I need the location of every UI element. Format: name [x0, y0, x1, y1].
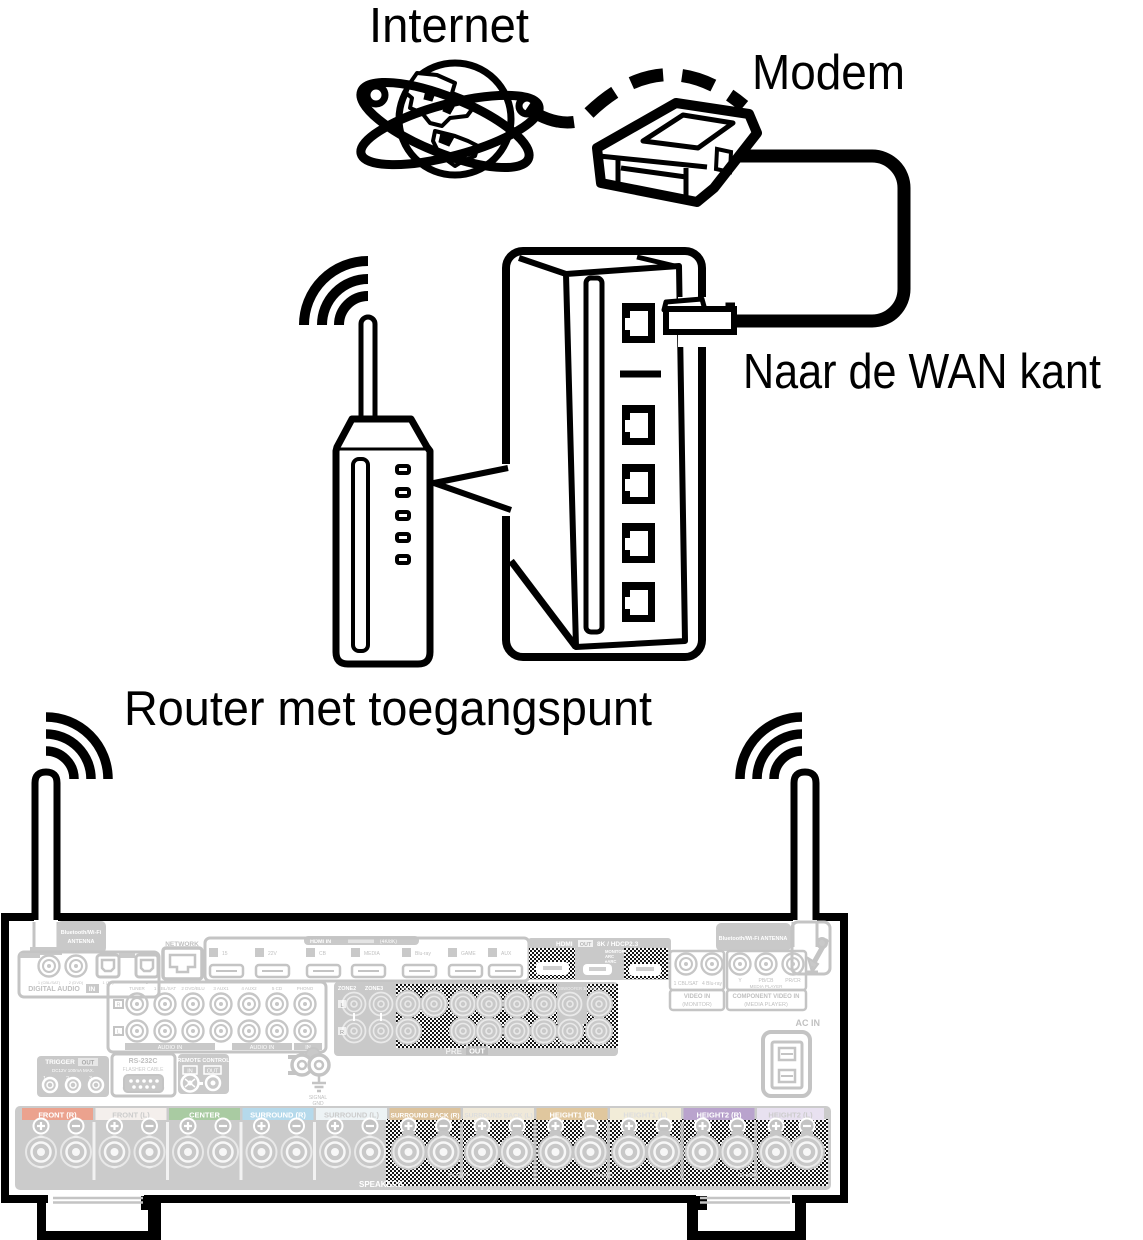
svg-text:L: L [117, 1030, 120, 1036]
svg-text:PRE: PRE [446, 1047, 463, 1056]
svg-text:22V: 22V [268, 951, 278, 957]
svg-text:AUDIO IN: AUDIO IN [250, 1045, 274, 1051]
svg-text:3 AUX1: 3 AUX1 [213, 986, 229, 991]
svg-text:FLASHER CABLE: FLASHER CABLE [123, 1067, 165, 1073]
svg-text:SPEAKERS: SPEAKERS [359, 1180, 404, 1189]
svg-text:4 AUX2: 4 AUX2 [241, 986, 257, 991]
svg-text:4 Blu-ray: 4 Blu-ray [702, 981, 723, 987]
svg-text:ANTENNA: ANTENNA [68, 939, 95, 945]
svg-text:REMOTE CONTROL: REMOTE CONTROL [177, 1058, 230, 1064]
svg-text:Bluetooth/Wi-Fi ANTENNA: Bluetooth/Wi-Fi ANTENNA [719, 936, 788, 942]
svg-text:Bluetooth/Wi-Fi: Bluetooth/Wi-Fi [61, 930, 102, 936]
svg-text:IN: IN [89, 986, 96, 993]
svg-text:(MEDIA PLAYER): (MEDIA PLAYER) [744, 1002, 788, 1008]
svg-text:OUT: OUT [207, 1069, 219, 1075]
svg-text:VIDEO IN: VIDEO IN [684, 994, 710, 1000]
svg-text:OUT: OUT [580, 942, 592, 948]
svg-text:TUNER: TUNER [129, 986, 145, 991]
svg-text:Modem: Modem [752, 46, 905, 100]
svg-text:GAME: GAME [461, 951, 476, 957]
svg-text:2 DVD/BLU: 2 DVD/BLU [181, 986, 204, 991]
svg-text:CENTER: CENTER [189, 1111, 220, 1120]
svg-text:DC12V 100mA MAX.: DC12V 100mA MAX. [52, 1068, 94, 1073]
svg-text:OUT: OUT [469, 1047, 485, 1056]
svg-text:(Bi-AMP): (Bi-AMP) [448, 1173, 469, 1179]
svg-text:Naar de WAN kant: Naar de WAN kant [743, 345, 1101, 399]
svg-text:(MONITOR): (MONITOR) [682, 1002, 712, 1008]
svg-text:eARC: eARC [605, 959, 616, 964]
svg-text:COMPONENT VIDEO IN: COMPONENT VIDEO IN [732, 994, 799, 1000]
svg-text:HDMI IN: HDMI IN [310, 939, 331, 945]
svg-text:MEDIA PLAYER: MEDIA PLAYER [750, 984, 783, 989]
svg-text:1 CBL/SAT: 1 CBL/SAT [154, 986, 176, 991]
svg-text:5 CD: 5 CD [272, 986, 283, 991]
svg-text:R: R [117, 1003, 121, 1009]
svg-text:R: R [340, 1030, 344, 1036]
svg-text:Internet: Internet [369, 0, 529, 53]
svg-text:1 CBL/SAT: 1 CBL/SAT [674, 981, 699, 987]
svg-text:AC IN: AC IN [796, 1018, 821, 1028]
svg-text:PHONO: PHONO [297, 986, 314, 991]
svg-text:FRONT (L): FRONT (L) [112, 1111, 150, 1120]
svg-text:TRIGGER: TRIGGER [45, 1059, 75, 1066]
svg-text:SURROUND BACK (R): SURROUND BACK (R) [391, 1113, 460, 1120]
svg-text:15: 15 [222, 951, 228, 957]
svg-text:2 (DVD): 2 (DVD) [69, 980, 84, 985]
svg-text:PR/CR: PR/CR [785, 978, 801, 984]
svg-text:RS-232C: RS-232C [129, 1058, 158, 1065]
svg-text:L: L [340, 1003, 343, 1009]
svg-text:(4K/8K): (4K/8K) [380, 939, 397, 945]
svg-text:MEDIA: MEDIA [364, 951, 381, 957]
svg-text:OUT: OUT [82, 1061, 95, 1067]
svg-text:Blu-ray: Blu-ray [415, 951, 431, 957]
svg-text:(Bi-AMP): (Bi-AMP) [593, 1173, 614, 1179]
svg-text:SURROUND BACK (L): SURROUND BACK (L) [464, 1113, 532, 1120]
svg-text:(Bi-AMP): (Bi-AMP) [738, 1173, 759, 1179]
svg-text:HDMI: HDMI [556, 941, 573, 948]
svg-text:SUBWOOFER 4: SUBWOOFER 4 [584, 1041, 616, 1046]
svg-text:CB: CB [319, 951, 327, 957]
svg-text:AUX: AUX [501, 951, 512, 957]
svg-text:AUDIO IN: AUDIO IN [158, 1045, 182, 1051]
svg-text:SUBWOOFER 3: SUBWOOFER 3 [555, 1041, 587, 1046]
svg-text:Router met toegangspunt: Router met toegangspunt [124, 682, 652, 736]
svg-text:8K / HDCP2.3: 8K / HDCP2.3 [597, 941, 639, 948]
svg-text:1 (CBL/SAT): 1 (CBL/SAT) [38, 980, 61, 985]
svg-text:DIGITAL AUDIO: DIGITAL AUDIO [28, 986, 80, 993]
